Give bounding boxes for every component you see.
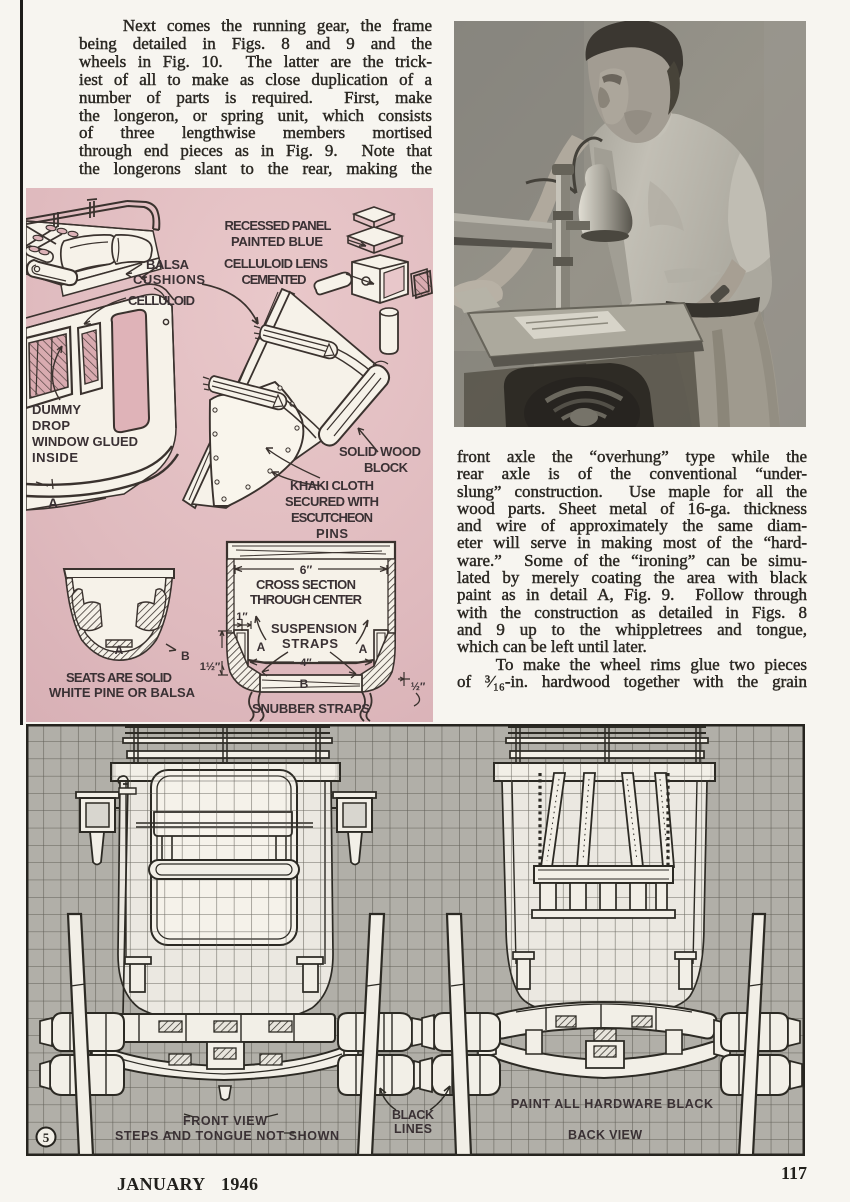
svg-text:WHITE PINE OR BALSA: WHITE PINE OR BALSA: [49, 685, 196, 700]
svg-text:B: B: [300, 677, 309, 691]
svg-text:½″: ½″: [411, 681, 426, 693]
svg-text:FRONT VIEW: FRONT VIEW: [183, 1114, 267, 1128]
svg-text:DUMMY: DUMMY: [32, 402, 81, 417]
svg-text:RECESSED PANEL: RECESSED PANEL: [225, 218, 332, 233]
svg-text:6″: 6″: [300, 563, 313, 577]
svg-text:CROSS SECTION: CROSS SECTION: [256, 577, 356, 592]
svg-text:CEMENTED: CEMENTED: [242, 272, 307, 287]
svg-text:CUSHIONS: CUSHIONS: [133, 272, 205, 287]
svg-text:STRAPS: STRAPS: [282, 636, 338, 651]
svg-text:SUSPENSION: SUSPENSION: [271, 621, 357, 636]
svg-text:A: A: [48, 495, 58, 511]
svg-text:1½″: 1½″: [200, 661, 221, 673]
svg-text:A: A: [359, 642, 368, 656]
svg-text:INSIDE: INSIDE: [32, 450, 78, 465]
svg-text:CELLULOID: CELLULOID: [128, 293, 195, 308]
svg-text:PINS: PINS: [316, 526, 348, 541]
svg-text:CELLULOID LENS: CELLULOID LENS: [224, 256, 328, 271]
svg-text:5: 5: [43, 1130, 50, 1145]
svg-text:SECURED WITH: SECURED WITH: [285, 494, 379, 509]
svg-text:BLOCK: BLOCK: [364, 460, 409, 475]
svg-text:B: B: [181, 649, 190, 663]
svg-text:A: A: [257, 640, 266, 654]
svg-text:WINDOW GLUED: WINDOW GLUED: [32, 434, 138, 449]
svg-text:BALSA: BALSA: [146, 257, 190, 272]
svg-text:DROP: DROP: [32, 418, 70, 433]
svg-text:1″: 1″: [236, 611, 248, 623]
svg-text:STEPS AND TONGUE NOT SHOWN: STEPS AND TONGUE NOT SHOWN: [115, 1129, 339, 1143]
svg-text:PAINTED BLUE: PAINTED BLUE: [231, 234, 323, 249]
svg-text:A: A: [115, 643, 124, 657]
svg-text:BLACK: BLACK: [392, 1108, 434, 1122]
svg-text:PAINT ALL HARDWARE BLACK: PAINT ALL HARDWARE BLACK: [511, 1097, 713, 1111]
svg-text:KHAKI CLOTH: KHAKI CLOTH: [290, 478, 374, 493]
svg-text:BACK VIEW: BACK VIEW: [568, 1128, 642, 1142]
svg-text:SEATS ARE SOLID: SEATS ARE SOLID: [66, 670, 172, 685]
svg-text:4″: 4″: [300, 657, 312, 669]
svg-text:SOLID WOOD: SOLID WOOD: [339, 444, 421, 459]
svg-text:ESCUTCHEON: ESCUTCHEON: [291, 510, 373, 525]
svg-text:LINES: LINES: [394, 1122, 432, 1136]
svg-text:THROUGH CENTER: THROUGH CENTER: [250, 592, 363, 607]
svg-text:SNUBBER STRAPS: SNUBBER STRAPS: [252, 701, 370, 716]
